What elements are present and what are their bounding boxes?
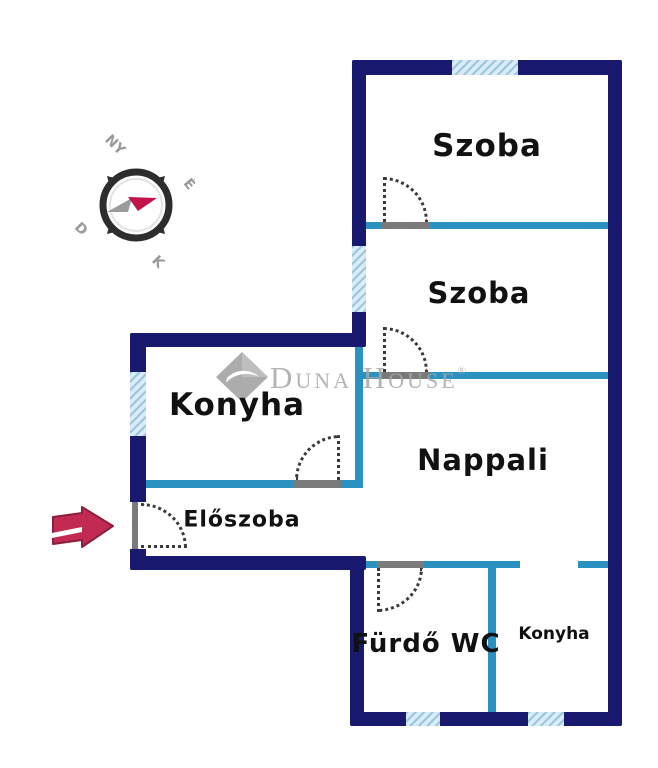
wall-right <box>608 60 622 726</box>
room-label-konyha2: Konyha <box>518 624 589 644</box>
compass-label-west: NY <box>101 132 128 159</box>
window-left-szoba2 <box>352 246 366 312</box>
compass-label-east: K <box>148 253 168 270</box>
compass-label-north: É <box>180 175 195 193</box>
threshold-konyha-door <box>293 480 341 488</box>
room-label-szoba1: Szoba <box>432 128 542 164</box>
wall-bottom <box>350 712 622 726</box>
window-left-konyha <box>130 372 146 436</box>
threshold-szoba1-door <box>381 222 430 229</box>
door-arc-szoba2 <box>383 327 428 372</box>
threshold-szoba2-door <box>381 372 430 379</box>
wall-konyha-top <box>130 333 366 347</box>
entrance-arrow-icon <box>52 505 116 549</box>
window-bottom-konyha2 <box>528 712 564 726</box>
threshold-entrance-door <box>132 502 138 549</box>
threshold-furdo-door <box>377 561 423 568</box>
window-bottom-furdo <box>406 712 440 726</box>
compass-label-south: D <box>71 219 91 239</box>
room-label-szoba2: Szoba <box>427 276 530 310</box>
door-arc-entrance <box>141 503 187 548</box>
window-top-szoba1 <box>452 60 518 75</box>
floor-plan-canvas: NY É D K Duna House® Szoba Szoba Konyha … <box>0 0 658 768</box>
wall-konyha-right <box>355 347 363 488</box>
door-arc-furdo <box>377 568 423 612</box>
room-label-eloszoba: Előszoba <box>183 508 300 533</box>
door-arc-szoba1 <box>383 177 428 222</box>
room-label-nappali: Nappali <box>417 443 549 477</box>
room-label-furdo-wc: Fürdő WC <box>351 629 500 659</box>
door-arc-konyha <box>295 435 340 480</box>
room-label-konyha: Konyha <box>169 387 305 423</box>
wall-nappali-bottom-right-stub <box>578 561 608 568</box>
compass-icon: NY É D K <box>68 128 195 270</box>
wall-eloszoba-bottom <box>130 556 366 570</box>
